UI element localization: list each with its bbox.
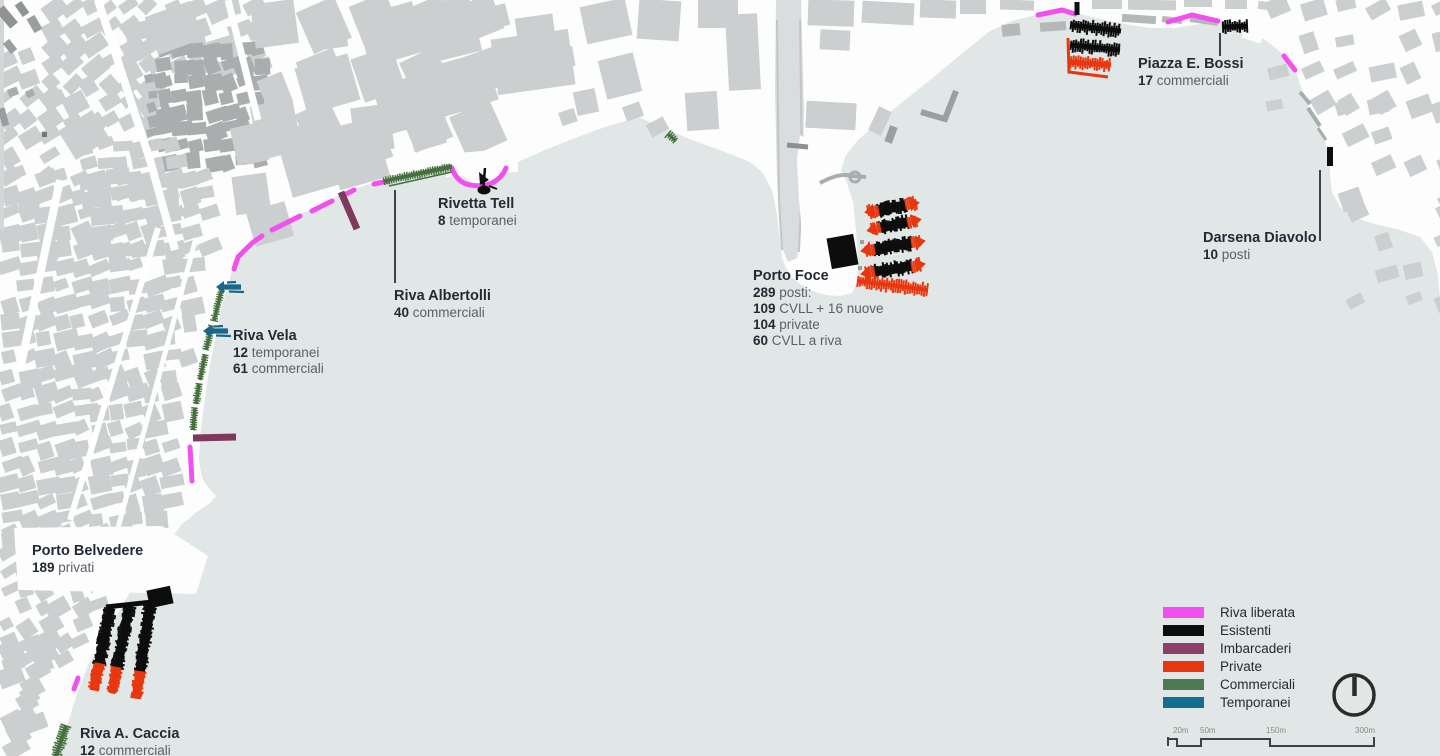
svg-text:Rivetta Tell: Rivetta Tell — [438, 196, 514, 212]
svg-text:150m: 150m — [1266, 726, 1286, 735]
svg-text:300m: 300m — [1355, 726, 1375, 735]
svg-text:104 private: 104 private — [753, 317, 820, 332]
svg-text:60 CVLL a riva: 60 CVLL a riva — [753, 333, 842, 348]
svg-text:Piazza E. Bossi: Piazza E. Bossi — [1138, 56, 1244, 72]
svg-text:12 commerciali: 12 commerciali — [80, 743, 171, 756]
svg-text:Riva Albertolli: Riva Albertolli — [394, 288, 491, 304]
svg-text:Temporanei: Temporanei — [1220, 695, 1291, 710]
svg-text:8 temporanei: 8 temporanei — [438, 213, 517, 228]
svg-text:Private: Private — [1220, 659, 1262, 674]
svg-text:289 posti:: 289 posti: — [753, 285, 812, 300]
svg-text:189 privati: 189 privati — [32, 560, 94, 575]
svg-text:12 temporanei: 12 temporanei — [233, 345, 319, 360]
svg-text:17 commerciali: 17 commerciali — [1138, 73, 1229, 88]
svg-text:Porto Foce: Porto Foce — [753, 268, 829, 284]
svg-text:Riva liberata: Riva liberata — [1220, 605, 1296, 620]
svg-text:50m: 50m — [1200, 726, 1216, 735]
svg-text:Porto Belvedere: Porto Belvedere — [32, 543, 143, 559]
svg-text:Riva Vela: Riva Vela — [233, 328, 298, 344]
svg-text:40 commerciali: 40 commerciali — [394, 305, 485, 320]
svg-text:Imbarcaderi: Imbarcaderi — [1220, 641, 1291, 656]
svg-text:Esistenti: Esistenti — [1220, 623, 1271, 638]
svg-text:10 posti: 10 posti — [1203, 247, 1250, 262]
svg-text:Riva A. Caccia: Riva A. Caccia — [80, 726, 180, 742]
svg-text:61 commerciali: 61 commerciali — [233, 361, 324, 376]
svg-text:109 CVLL + 16 nuove: 109 CVLL + 16 nuove — [753, 301, 884, 316]
svg-text:20m: 20m — [1173, 726, 1189, 735]
svg-text:Commerciali: Commerciali — [1220, 677, 1295, 692]
svg-text:Darsena Diavolo: Darsena Diavolo — [1203, 230, 1317, 246]
